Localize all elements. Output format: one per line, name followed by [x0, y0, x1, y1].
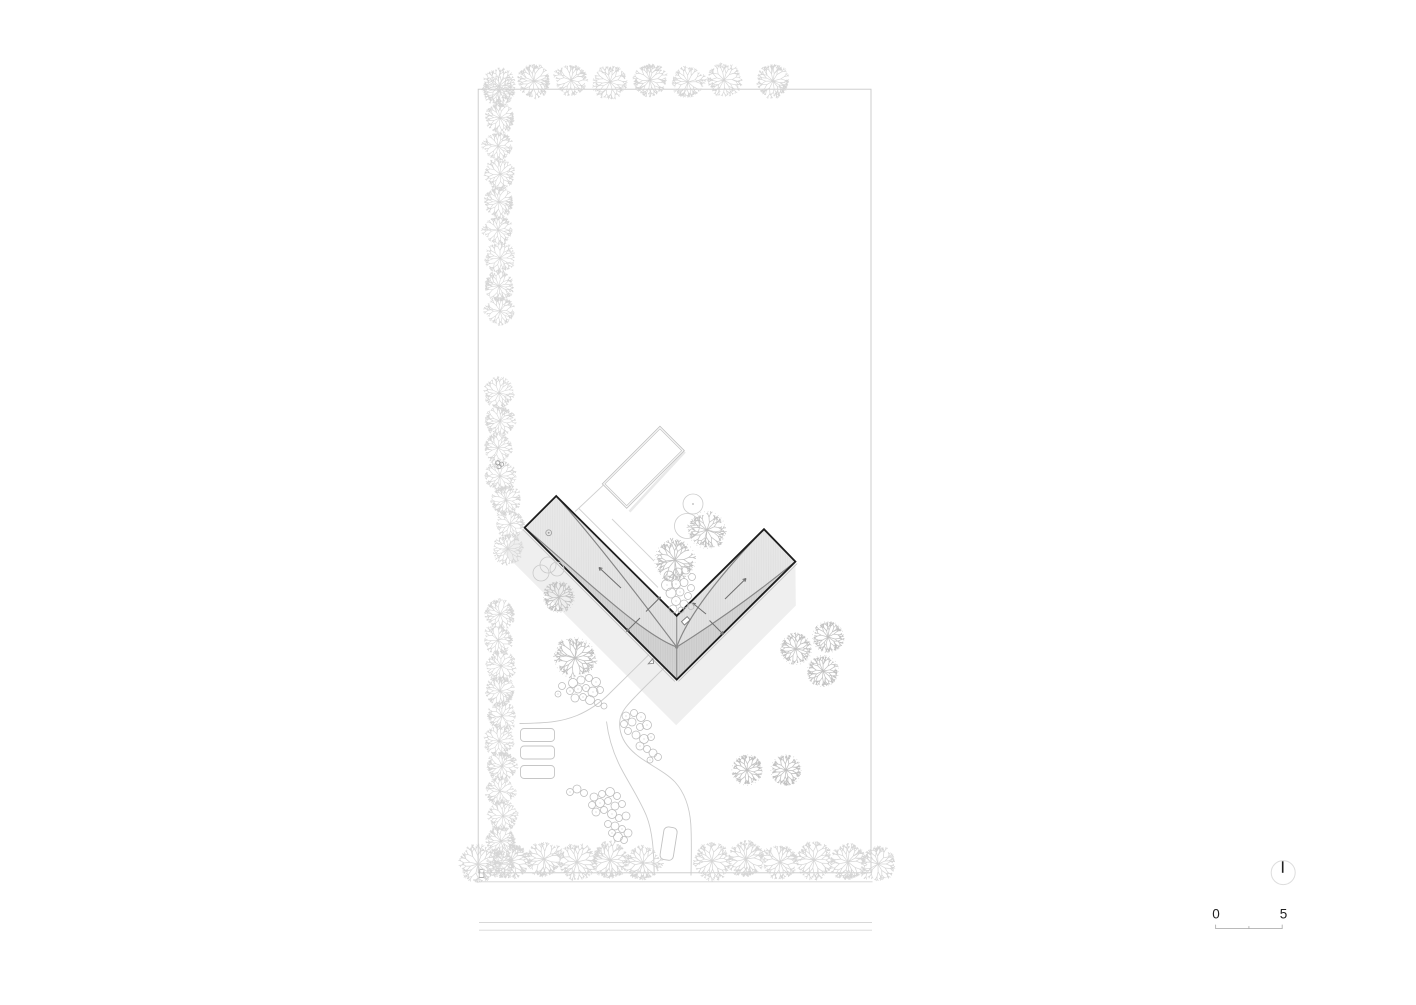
svg-text:0: 0 [1212, 907, 1220, 922]
svg-text:5: 5 [1280, 907, 1288, 922]
